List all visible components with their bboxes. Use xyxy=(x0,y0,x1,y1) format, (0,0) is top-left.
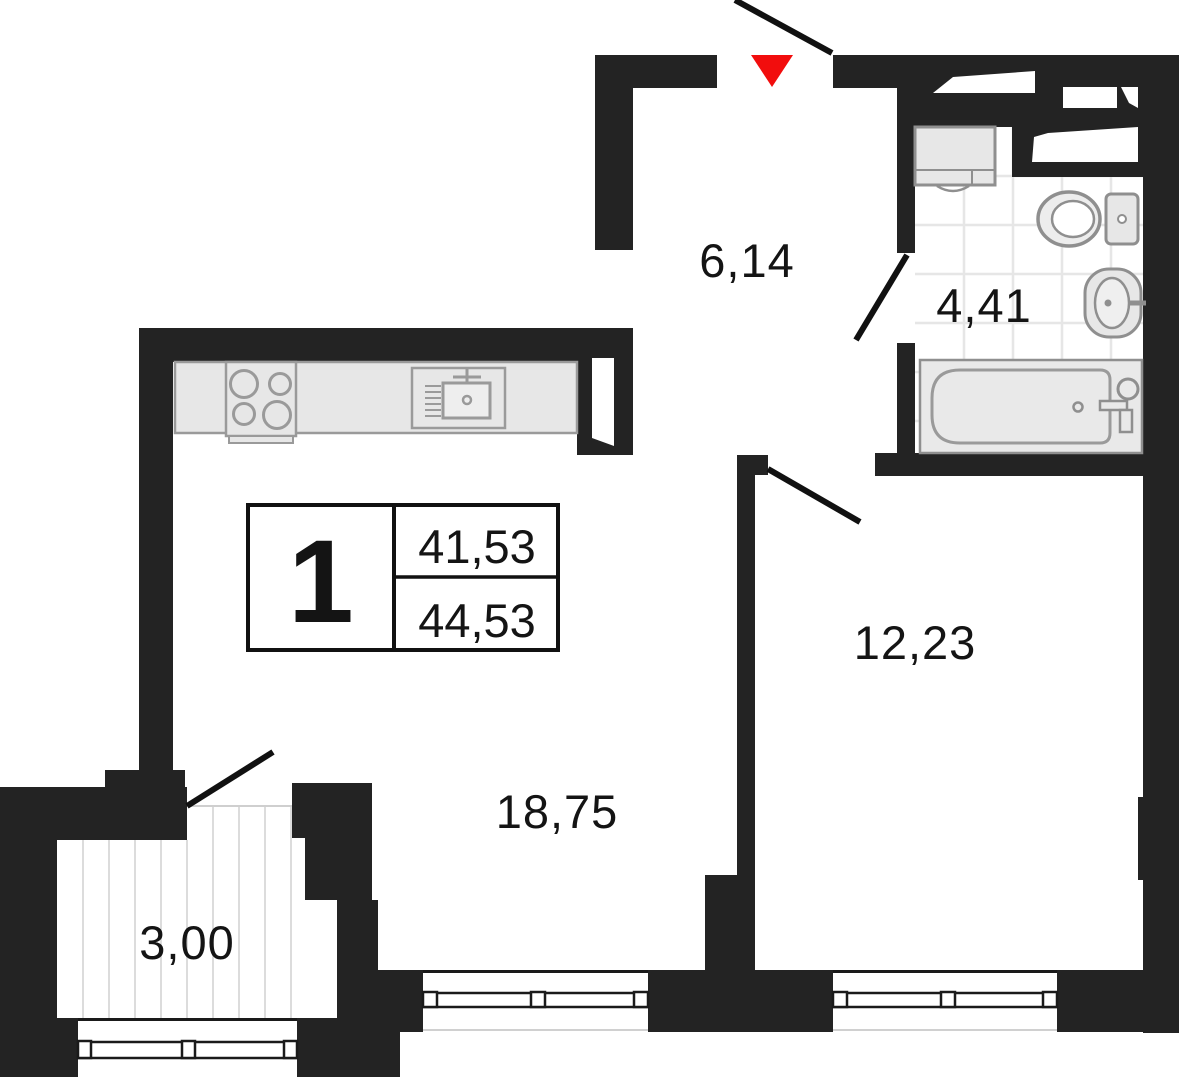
entrance-marker-triangle xyxy=(751,55,793,87)
bedroom-door-swing xyxy=(768,469,860,522)
kitchen-door-leaf xyxy=(592,358,614,446)
bathroom-sink-drain xyxy=(1105,300,1112,307)
room-label-bathroom: 4,41 xyxy=(936,279,1031,332)
bathroom-sink-bowl xyxy=(1095,278,1129,328)
toilet-bowl-inner xyxy=(1052,201,1094,237)
bathtub-shower-head xyxy=(1118,379,1138,399)
legend-area-living: 41,53 xyxy=(418,520,536,573)
living-room-window xyxy=(423,970,648,1032)
entrance-door-swing xyxy=(735,0,832,53)
legend-room-count: 1 xyxy=(288,516,354,648)
stove-handle xyxy=(229,436,293,443)
vent-shaft-middle xyxy=(1063,87,1117,108)
bathtub xyxy=(920,360,1142,453)
kitchen-counter xyxy=(175,362,577,443)
washing-machine-body xyxy=(915,127,995,185)
balcony-window xyxy=(78,1018,297,1077)
room-label-hallway: 6,14 xyxy=(699,234,794,287)
floor-plan-canvas: 1 41,53 44,53 6,14 4,41 12,23 18,75 3,00 xyxy=(0,0,1179,1077)
bathtub-pipe xyxy=(1120,410,1132,432)
toilet-tank-button xyxy=(1118,215,1126,223)
bathtub-faucet xyxy=(1100,401,1127,410)
washing-machine xyxy=(915,127,995,191)
toilet xyxy=(1038,192,1138,246)
room-label-living: 18,75 xyxy=(496,785,619,838)
legend-area-total: 44,53 xyxy=(418,594,536,647)
legend-box: 1 41,53 44,53 xyxy=(248,505,558,650)
floor-plan-page: 1 41,53 44,53 6,14 4,41 12,23 18,75 3,00 xyxy=(0,0,1179,1077)
bathroom-sink xyxy=(1085,269,1146,337)
bedroom-window xyxy=(833,970,1057,1032)
balcony-door-swing xyxy=(187,752,273,806)
room-label-bedroom: 12,23 xyxy=(854,616,977,669)
room-label-balcony: 3,00 xyxy=(139,916,234,969)
kitchen-sink-bowl xyxy=(443,383,490,418)
